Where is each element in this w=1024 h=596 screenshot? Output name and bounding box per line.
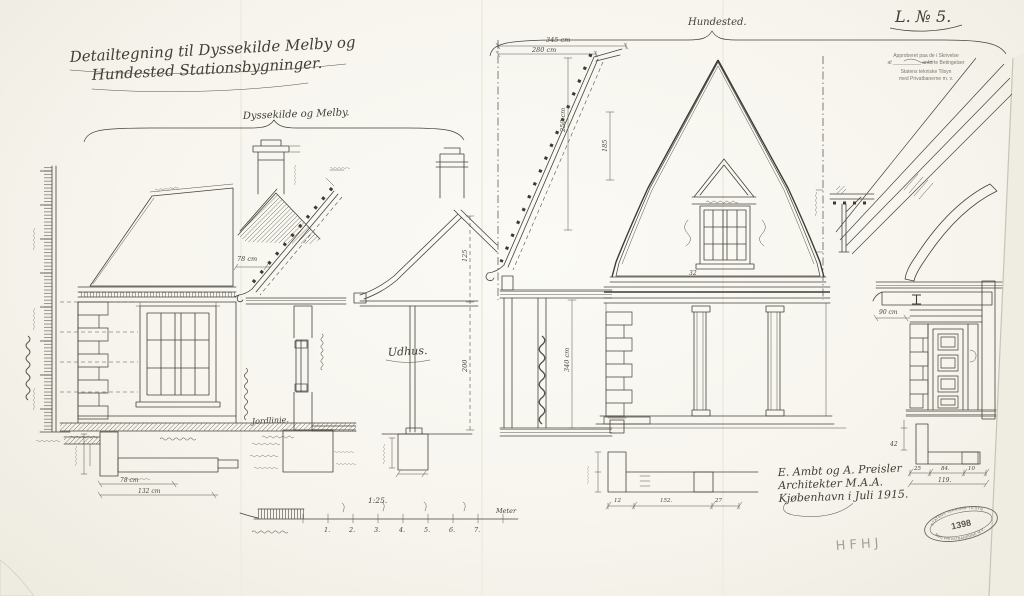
dim-185: 185 — [601, 140, 609, 152]
gable-elevation: 32 — [580, 60, 846, 428]
wall-edges — [78, 302, 236, 423]
shed-chimney — [436, 148, 468, 198]
roof-edge-lines — [93, 184, 233, 284]
eave-overhang-dim-line — [234, 264, 270, 270]
door-quoins — [910, 324, 928, 408]
dim-340: 340 cm — [563, 348, 571, 372]
foundation-rubble — [283, 430, 333, 472]
sill-inner-ticks — [640, 476, 650, 486]
volute-ornaments — [685, 220, 766, 246]
rotated-note-squiggle-2 — [539, 336, 545, 424]
dim-10: 10 — [968, 466, 975, 472]
sill-detail: 12 152. 27 — [587, 418, 758, 509]
scale-tick-4: 4. — [398, 526, 405, 534]
gable-roof-inner-lines — [622, 66, 814, 264]
dim-152: 152. — [660, 498, 672, 504]
dim-90: 90 cm — [879, 309, 898, 316]
threshold-fill — [906, 411, 996, 415]
ruler-minor-ticks — [44, 166, 52, 432]
dim-27: 27 — [714, 498, 722, 504]
udhus-label: Udhus. — [387, 344, 427, 359]
shed-eave-lines — [360, 301, 478, 306]
dim-78-eave: 78 cm — [237, 255, 257, 263]
pilasters — [692, 306, 784, 416]
cornice-fill — [876, 283, 1002, 287]
eave-bracket — [354, 293, 366, 303]
architectural-drawing: Detailtegning til Dyssekilde Melby og Hu… — [0, 0, 1024, 596]
scale-meter-ticks — [303, 502, 503, 523]
top-dim-lines — [496, 43, 628, 57]
interior-wall-lines — [504, 298, 546, 428]
eave-gutter-2 — [486, 265, 504, 281]
dim-78-step: 78 cm — [120, 477, 139, 484]
sill-vertical-section — [608, 452, 626, 492]
approval-stamp: Approberet paa de i Skrivelse af _______… — [888, 53, 965, 82]
door-hook — [970, 350, 976, 362]
hundested-roof-section: 345 cm 280 cm 340 cm 250 cm 185 — [486, 36, 628, 436]
bell-cast-eave-section — [905, 184, 997, 281]
floor-band-fill — [500, 291, 612, 297]
dim-125: 125 — [461, 250, 469, 262]
door-lintel-band — [910, 310, 982, 322]
post-section-block — [610, 420, 624, 433]
gable-window — [696, 206, 754, 269]
dim-200: 200 — [461, 360, 469, 373]
dim-119: 119. — [938, 477, 951, 484]
jamb-plan-strip — [916, 424, 928, 464]
wall-jamb-hatch — [982, 281, 995, 419]
foundation-dim-lines — [389, 438, 428, 477]
rotated-note-squiggle — [244, 368, 247, 420]
dim-84: 84. — [941, 466, 950, 472]
ridge-ticks — [326, 170, 344, 186]
timber-post — [406, 306, 422, 434]
pencil-note: HFHJ — [835, 536, 883, 554]
corner-quoins — [78, 302, 108, 419]
foundation-step-detail: 78 cm 132 cm — [64, 432, 238, 498]
scale-tick-1: 1. — [324, 526, 330, 534]
left-group-brace — [84, 120, 464, 142]
sidewalk-hatch — [64, 438, 100, 444]
window-with-glazing-bars — [136, 306, 220, 407]
step-horizontal-section — [118, 458, 218, 472]
cornice-bands — [604, 277, 830, 303]
left-group-label: Dyssekilde og Melby. — [242, 107, 350, 122]
ruler-script-squiggle — [26, 336, 30, 400]
scale-ratio: 1:25. — [368, 496, 387, 505]
signature-block: E. Ambt og A. Preisler Architekter M.A.A… — [777, 462, 910, 518]
approval-line-4: med Privatbanerne m. v. — [899, 76, 953, 82]
oval-stamp: STATENS TEKNISKE TILSYN MED PRIVATBANERN… — [921, 500, 1000, 548]
dentil-band — [79, 293, 235, 298]
sweep-dim-ticks — [816, 190, 823, 252]
post-foundation — [398, 434, 428, 470]
window-crossettes — [136, 302, 220, 306]
ceiling-fill — [246, 299, 346, 303]
dim-345: 345 cm — [546, 36, 570, 44]
shed-roof-profile — [360, 210, 497, 299]
scale-tick-3: 3. — [374, 526, 380, 534]
sill-plan-lines — [928, 452, 980, 464]
dim-32: 32 — [689, 270, 697, 277]
right-roof-sweep — [815, 56, 1012, 419]
gable-corner-quoins — [606, 312, 632, 416]
scale-tick-5: 5. — [424, 526, 430, 534]
roof-battens-2 — [501, 54, 591, 262]
height-ruler — [26, 166, 70, 442]
door-detail: 90 cm 25 84. 10 119. 42 — [874, 309, 996, 487]
udhus-underline — [386, 360, 430, 363]
sill-plan-block — [962, 452, 978, 464]
eave-cornice-and-post-detail — [830, 194, 874, 252]
stamp-number: 1398 — [950, 518, 972, 532]
drawing-sheet: Detailtegning til Dyssekilde Melby og Hu… — [0, 0, 1024, 596]
door-panels — [938, 334, 958, 408]
sheet-number: L. № 5. — [890, 7, 962, 31]
long-rafter-lines — [836, 58, 1012, 254]
approval-line-3: Statens tekniske Tilsyn — [901, 69, 952, 75]
title-block: Detailtegning til Dyssekilde Melby og Hu… — [68, 33, 356, 92]
dim-132: 132 cm — [138, 488, 161, 495]
scale-tick-6: 6. — [449, 526, 455, 534]
dim-line-250 — [564, 58, 572, 230]
chimney-dim-ticks — [290, 146, 300, 152]
step-lip — [218, 460, 238, 468]
scale-comb-ticks — [258, 509, 304, 519]
wall-head-section — [502, 276, 513, 290]
udhus-section: Udhus. 125 200 — [354, 148, 497, 477]
rafter-dashed-2 — [513, 62, 603, 270]
scale-tick-2: 2. — [348, 526, 355, 534]
scale-bar: 1:25. 1. 2. 3. 4. 5. 6. 7. Meter — [240, 496, 518, 534]
sill-bar-lines — [626, 472, 758, 492]
rafter-pair — [504, 49, 622, 267]
scale-tick-7: 7. — [474, 526, 480, 534]
group-labels: Dyssekilde og Melby. Hundested. — [84, 17, 1006, 142]
small-hatch-block — [836, 186, 846, 194]
hip-roof-tiled — [90, 188, 233, 286]
pilaster-flutes-and-edges — [606, 303, 826, 416]
base-band-fill — [500, 429, 612, 435]
approval-line-1: Approberet paa de i Skrivelse — [893, 53, 959, 59]
chimney-detail — [238, 140, 320, 244]
dim-line-42 — [901, 420, 907, 450]
scale-unit: Meter — [495, 507, 517, 515]
right-group-label: Hundested. — [687, 17, 747, 28]
anchor-iron-symbol — [912, 295, 921, 304]
dim-280: 280 cm — [531, 46, 556, 54]
dim-25: 25 — [913, 466, 921, 472]
dim-42: 42 — [889, 441, 898, 448]
sill-block-section — [694, 472, 713, 492]
dim-250: 250 cm — [559, 108, 567, 133]
chimney — [253, 140, 289, 194]
gable-roof-edges — [612, 60, 824, 277]
step-vertical-section — [100, 432, 118, 476]
dim-12: 12 — [614, 498, 621, 504]
sheet-number-text: L. № 5. — [894, 7, 951, 26]
